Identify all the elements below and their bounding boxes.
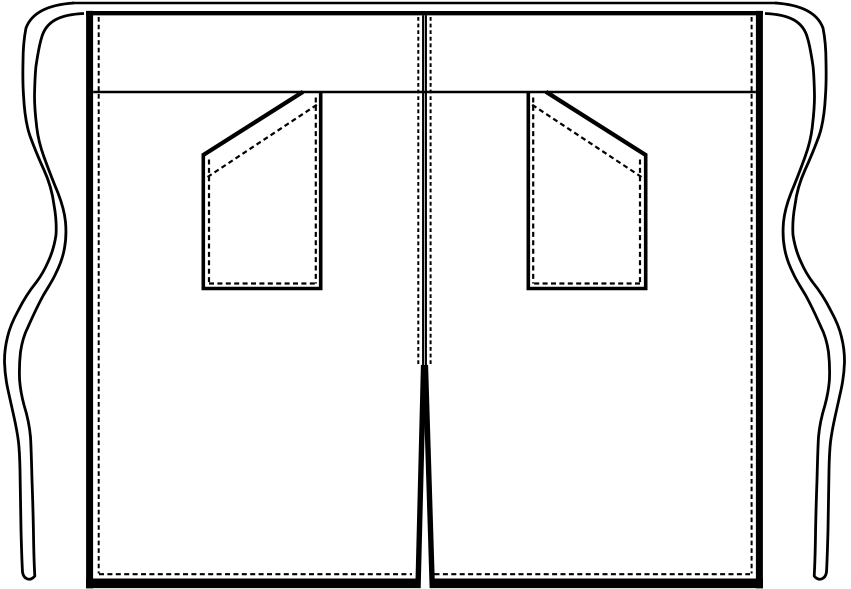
apron-drawing-svg — [0, 0, 851, 589]
apron-flat-sketch — [0, 0, 851, 589]
